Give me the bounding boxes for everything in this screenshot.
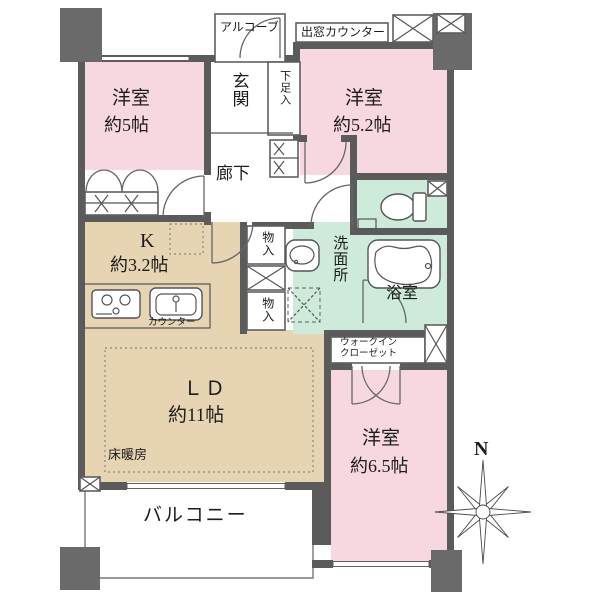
west1-name: 洋室	[112, 88, 150, 110]
wic-label-line2: クローゼット	[340, 349, 397, 360]
wall-west3-bottom-a	[312, 560, 333, 568]
bathroom-label: 浴室	[386, 285, 418, 303]
corridor-shoe-closet	[270, 140, 298, 177]
compass-north-label: N	[474, 438, 488, 461]
wall-closet-bottom	[78, 215, 211, 222]
balcony-label: バルコニー	[143, 505, 248, 527]
west3-name: 洋室	[362, 428, 400, 450]
wall-left	[78, 55, 85, 490]
wic-label-line1: ウォークイン	[340, 338, 397, 349]
window-ld-balcony	[127, 484, 285, 489]
floor-plan-drawing	[0, 0, 600, 600]
ld-name: ＬＤ	[183, 378, 227, 401]
shoe-cabinet-label: 下足入	[278, 70, 291, 130]
west1-door	[163, 176, 204, 217]
bathtub-icon	[368, 240, 440, 288]
wall-right	[447, 70, 454, 552]
west3-size: 約6.5帖	[350, 456, 409, 477]
washbasin-icon	[286, 240, 319, 271]
window-west3-bottom	[333, 562, 429, 567]
wall-west3-left-block	[312, 485, 331, 545]
balcony-outline	[85, 490, 313, 578]
storage-top-label: 物入	[260, 231, 274, 261]
wall-toilet-top	[350, 173, 454, 180]
ld-size: 約11帖	[168, 405, 224, 427]
sink-icon	[150, 288, 202, 320]
kitchen-name: K	[140, 230, 154, 253]
entrance-label: 玄関	[229, 72, 249, 128]
west2-size: 約5.2帖	[333, 115, 392, 136]
pillar-bottom-left	[60, 547, 100, 590]
west1-closet	[85, 170, 158, 215]
stove-icon	[92, 290, 140, 318]
window-west1-top	[101, 57, 189, 61]
pillar-top-left	[60, 8, 102, 62]
pillar-bottom-right	[431, 550, 462, 592]
wall-west1-right	[204, 55, 211, 175]
wall-west2-top	[293, 42, 437, 49]
west2-name: 洋室	[345, 88, 383, 110]
western-room-2-area	[300, 49, 447, 175]
storage-bottom-label: 物入	[260, 297, 274, 327]
wall-kitchen-right	[240, 222, 247, 334]
bay-window-counter-label: 出窓カウンター	[301, 26, 385, 40]
alcove-label: アルコーブ	[220, 21, 279, 35]
floor-plan: 洋室 約5帖 洋室 約5.2帖 洋室 約6.5帖 ＬＤ 約11帖 K 約3.2帖…	[0, 0, 600, 600]
washroom-door	[311, 185, 352, 226]
west1-size: 約5帖	[104, 115, 149, 136]
floor-heating-label: 床暖房	[108, 448, 147, 463]
counter-label: カウンター	[148, 318, 196, 329]
washroom-label: 洗面所	[330, 235, 347, 325]
kitchen-size: 約3.2帖	[110, 255, 169, 276]
wall-wic-bottom-b	[400, 363, 454, 370]
wall-ld-right	[324, 330, 331, 490]
corridor-label: 廊下	[216, 164, 250, 184]
washroom-area	[293, 222, 357, 334]
